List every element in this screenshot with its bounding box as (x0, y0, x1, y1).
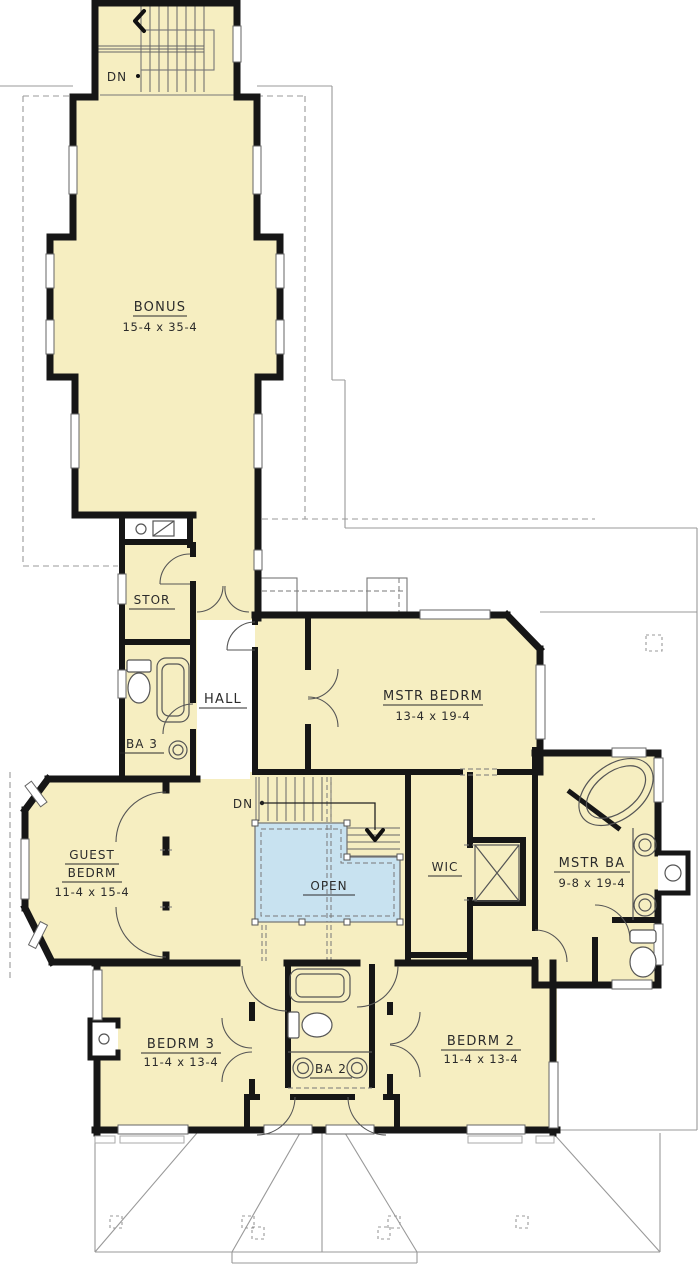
bedrm2-dims: 11-4 x 13-4 (443, 1052, 518, 1066)
mstr-ba-niche (658, 853, 688, 893)
open-label: OPEN (310, 879, 347, 893)
bonus-dims: 15-4 x 35-4 (122, 320, 197, 334)
bedrm2-label: BEDRM 2 (447, 1034, 515, 1049)
guest-bedrm-dims: 11-4 x 15-4 (54, 885, 129, 899)
stor-label: STOR (134, 593, 171, 607)
guest-bedrm-label-line2: BEDRM (68, 866, 117, 880)
hall-label: HALL (204, 692, 242, 707)
ba2-label: BA 2 (315, 1062, 347, 1076)
toilet-icon (288, 1012, 299, 1038)
floor-plan-svg: DN BONUS 15-4 x 35-4 STOR HALL BA 3 MSTR… (0, 0, 700, 1274)
toilet-icon (127, 660, 151, 672)
mstr-bedrm-label: MSTR BEDRM (383, 689, 483, 704)
mstr-ba-dims: 9-8 x 19-4 (559, 876, 626, 890)
guest-bedrm-label-line1: GUEST (69, 848, 115, 862)
dn-label-main: DN (233, 797, 253, 811)
dormer-outlines (260, 578, 407, 612)
bedrm3-dims: 11-4 x 13-4 (143, 1055, 218, 1069)
toilet-icon (630, 930, 656, 943)
mstr-bedrm-dims: 13-4 x 19-4 (395, 709, 470, 723)
floor-plan-page: DN BONUS 15-4 x 35-4 STOR HALL BA 3 MSTR… (0, 0, 700, 1274)
laundry-icon (136, 521, 174, 536)
mstr-ba-label: MSTR BA (559, 856, 626, 871)
wic-label: WIC (432, 860, 459, 874)
ba3-label: BA 3 (126, 737, 158, 751)
bonus-label: BONUS (134, 300, 186, 315)
chimney-icon (90, 1020, 118, 1058)
dn-label-top: DN (107, 70, 127, 84)
bedrm3-label: BEDRM 3 (147, 1037, 215, 1052)
